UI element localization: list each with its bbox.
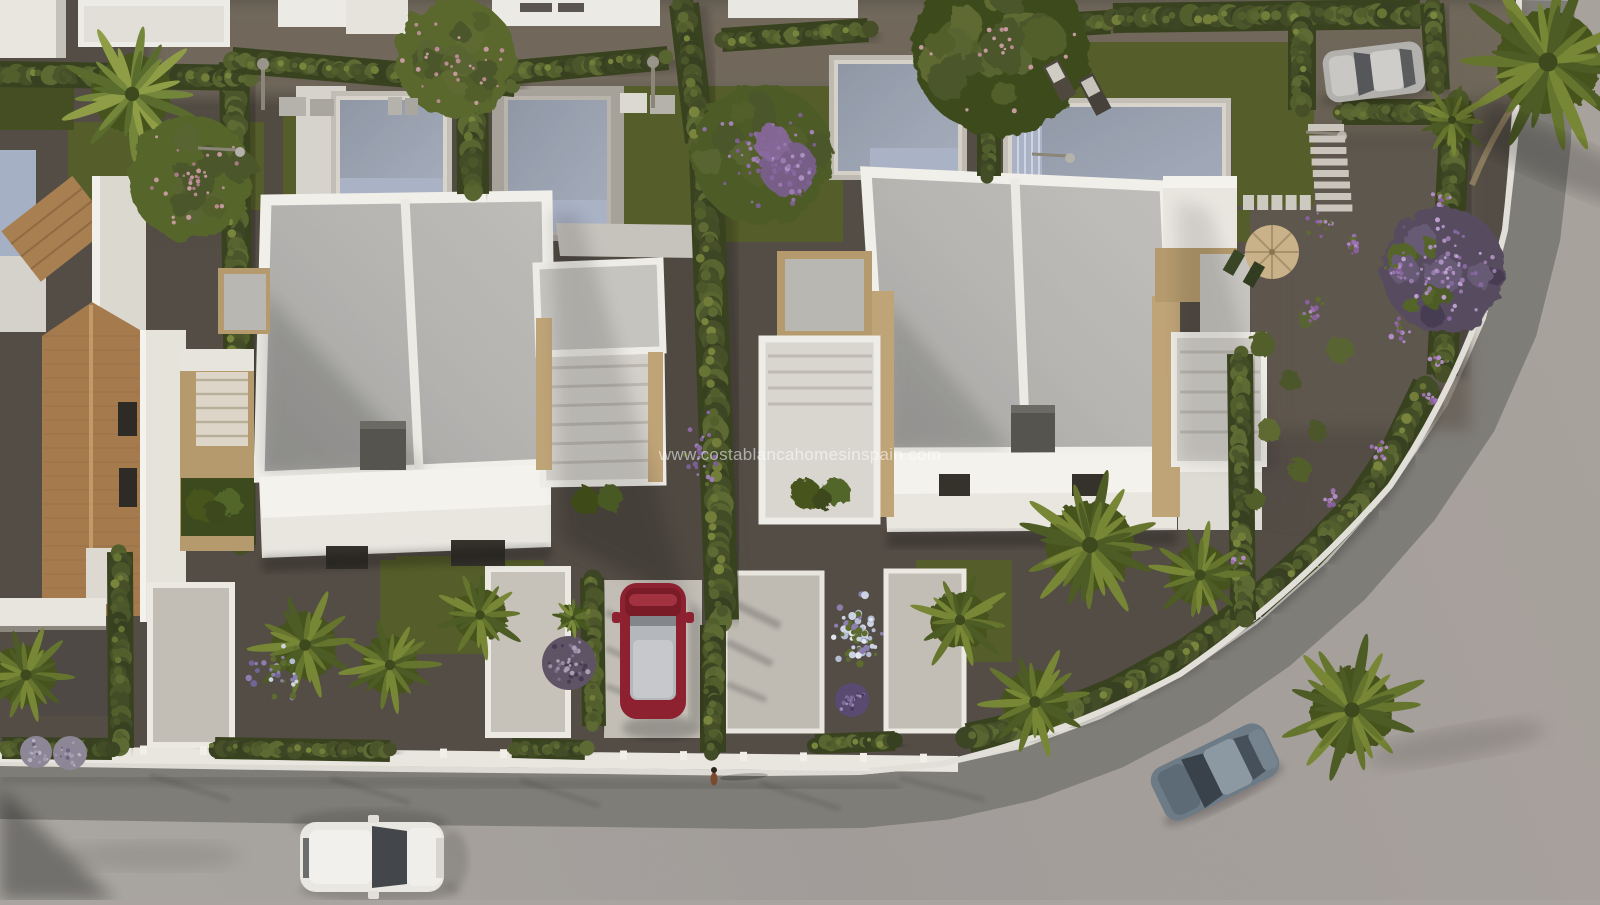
svg-text:www.costablancahomesinspain.co: www.costablancahomesinspain.com bbox=[658, 445, 941, 464]
